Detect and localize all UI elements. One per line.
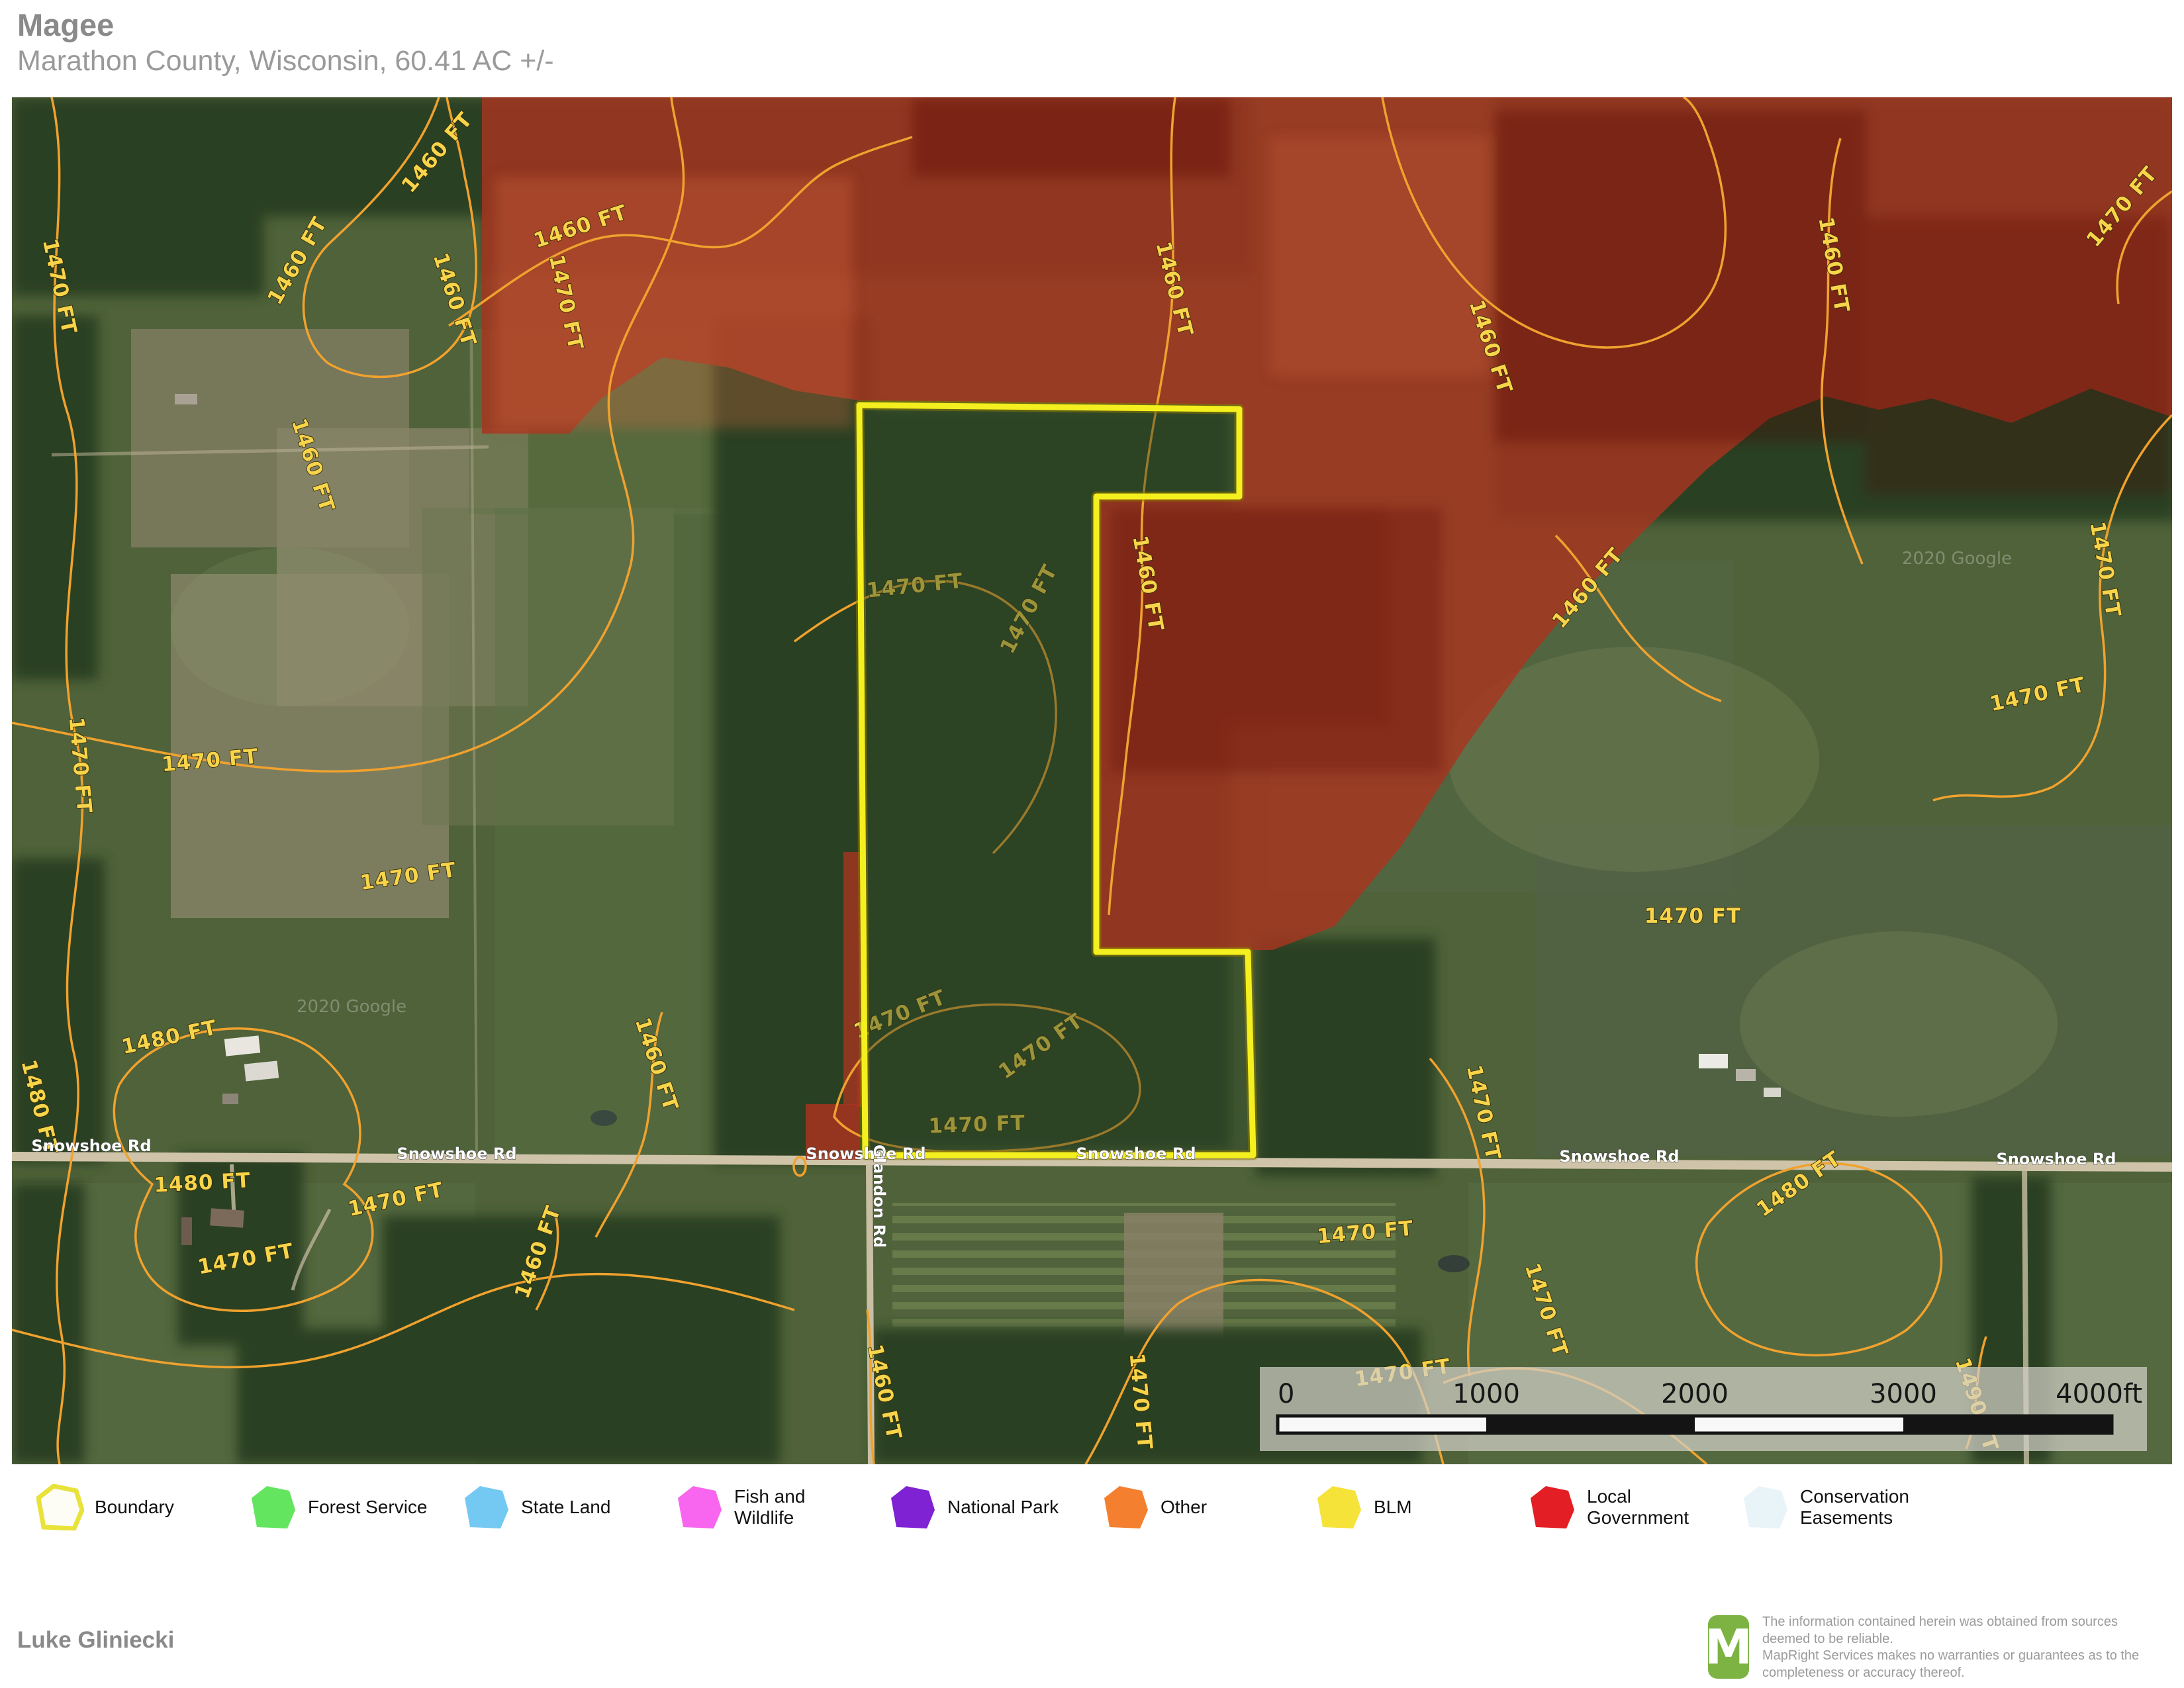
- road-label: 4000ft: [2056, 1379, 2142, 1409]
- legend-swatch-icon: [1529, 1484, 1576, 1530]
- legend-item-label: BLM: [1374, 1497, 1412, 1518]
- legend-swatch-icon: [1102, 1484, 1150, 1530]
- legend-item-blm: BLM: [1315, 1479, 1412, 1536]
- legend-item-label: Forest Service: [308, 1497, 428, 1518]
- legend-swatch-icon: [463, 1484, 510, 1530]
- mapright-logo: M: [1708, 1615, 1749, 1679]
- road-label: Glandon Rd: [870, 1145, 888, 1248]
- footer-disclaimer: The information contained herein was obt…: [1762, 1614, 2166, 1681]
- legend-swatch-icon: [1742, 1484, 1789, 1530]
- scale-bar: 01000200030004000ft: [1260, 1367, 2147, 1451]
- legend-item-conservation-easements: Conservation Easements: [1742, 1479, 1909, 1536]
- legend-item-forest-service: Forest Service: [250, 1479, 428, 1536]
- legend-item-national-park: National Park: [889, 1479, 1059, 1536]
- road-label: Snowshoe Rd: [1559, 1147, 1679, 1166]
- road-label: 1000: [1452, 1379, 1520, 1409]
- map-svg: 1470 FT1460 FT1460 FT1460 FT1470 FT1460 …: [12, 97, 2172, 1464]
- legend-item-label: Other: [1161, 1497, 1207, 1518]
- legend-item-other: Other: [1102, 1479, 1207, 1536]
- legend-item-label: Boundary: [95, 1497, 174, 1518]
- road-label: Snowshoe Rd: [397, 1145, 516, 1163]
- map-canvas: 1470 FT1460 FT1460 FT1460 FT1470 FT1460 …: [12, 97, 2172, 1464]
- legend-swatch-icon: [676, 1484, 724, 1530]
- road-label: Snowshoe Rd: [1996, 1150, 2116, 1168]
- legend-item-label: National Park: [947, 1497, 1059, 1518]
- contour-label: 1470 FT: [1644, 904, 1741, 928]
- legend-item-fish-and-wildlife: Fish and Wildlife: [676, 1479, 805, 1536]
- road-label: Snowshoe Rd: [806, 1145, 926, 1163]
- legend-item-boundary: Boundary: [36, 1479, 174, 1536]
- legend-item-label: State Land: [521, 1497, 610, 1518]
- page-subtitle: Marathon County, Wisconsin, 60.41 AC +/-: [17, 45, 554, 77]
- legend: Boundary Forest Service State Land Fish …: [0, 1475, 2184, 1548]
- road-label: Snowshoe Rd: [1076, 1145, 1196, 1163]
- legend-swatch-icon: [889, 1484, 937, 1530]
- legend-item-label: Local Government: [1587, 1486, 1689, 1528]
- legend-swatch-icon: [250, 1484, 297, 1530]
- road-label: 0: [1278, 1379, 1294, 1409]
- legend-swatch-icon: [36, 1484, 84, 1530]
- watermark-label: 2020 Google: [1902, 549, 2012, 569]
- road-label: 2000: [1661, 1379, 1729, 1409]
- legend-item-state-land: State Land: [463, 1479, 610, 1536]
- page-title: Magee: [17, 7, 114, 43]
- scale-bar-segments: [1278, 1416, 2112, 1433]
- legend-item-label: Fish and Wildlife: [734, 1486, 805, 1528]
- road-label: Snowshoe Rd: [31, 1137, 151, 1155]
- legend-swatch-icon: [1315, 1484, 1363, 1530]
- legend-item-label: Conservation Easements: [1800, 1486, 1909, 1528]
- contour-label: 1480 FT: [153, 1168, 251, 1197]
- watermark-label: 2020 Google: [297, 997, 406, 1017]
- road-label: 3000: [1870, 1379, 1937, 1409]
- footer-attribution: Luke Gliniecki: [17, 1627, 174, 1654]
- legend-item-local-government: Local Government: [1529, 1479, 1689, 1536]
